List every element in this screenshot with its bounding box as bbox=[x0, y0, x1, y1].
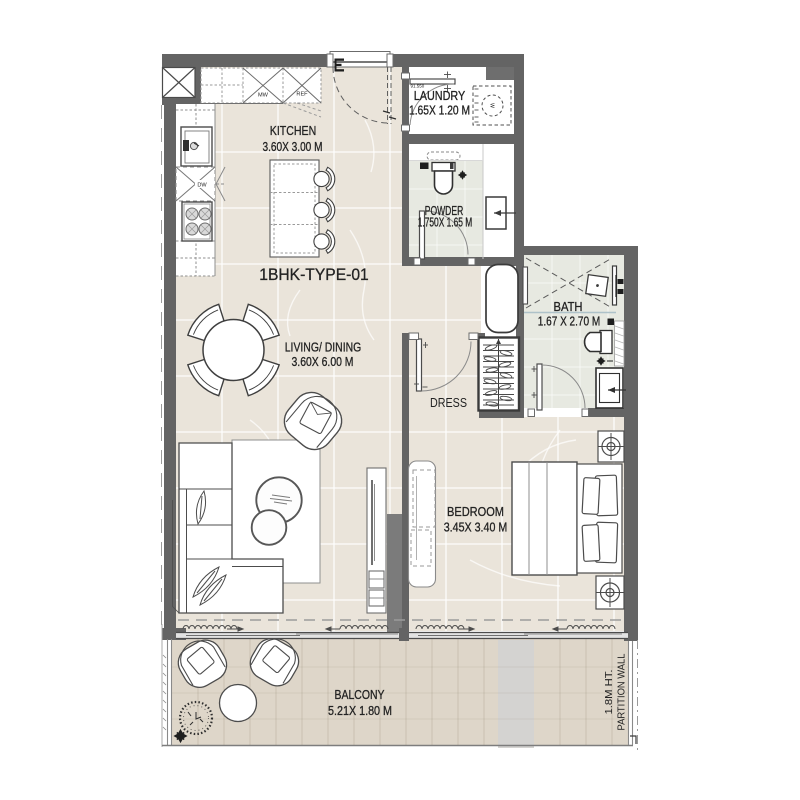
svg-text:BATH: BATH bbox=[554, 299, 583, 314]
svg-text:1.750X 1.65 M: 1.750X 1.65 M bbox=[418, 215, 473, 230]
svg-text:REF: REF bbox=[296, 92, 308, 98]
svg-text:BEDROOM: BEDROOM bbox=[447, 504, 504, 519]
svg-text:3.60X 3.00 M: 3.60X 3.00 M bbox=[263, 139, 323, 154]
svg-text:3.45X 3.40 M: 3.45X 3.40 M bbox=[444, 520, 508, 535]
svg-text:BALCONY: BALCONY bbox=[335, 687, 385, 702]
svg-text:PARTITION WALL: PARTITION WALL bbox=[616, 653, 628, 730]
svg-text:DW: DW bbox=[197, 183, 207, 189]
svg-text:MW: MW bbox=[258, 93, 269, 99]
svg-text:1.65X 1.20 M: 1.65X 1.20 M bbox=[409, 103, 470, 118]
svg-text:DRESS: DRESS bbox=[430, 395, 467, 410]
svg-text:LAUNDRY: LAUNDRY bbox=[414, 88, 466, 103]
svg-text:KITCHEN: KITCHEN bbox=[270, 123, 317, 138]
svg-text:5.21X 1.80 M: 5.21X 1.80 M bbox=[328, 703, 392, 718]
svg-text:1.8M HT.: 1.8M HT. bbox=[603, 670, 615, 715]
svg-text:3.60X 6.00 M: 3.60X 6.00 M bbox=[292, 354, 354, 369]
svg-text:1.67 X 2.70 M: 1.67 X 2.70 M bbox=[538, 314, 601, 329]
svg-text:1BHK-TYPE-01: 1BHK-TYPE-01 bbox=[259, 265, 369, 284]
svg-text:LIVING/ DINING: LIVING/ DINING bbox=[285, 340, 362, 355]
svg-text:W: W bbox=[489, 103, 495, 108]
